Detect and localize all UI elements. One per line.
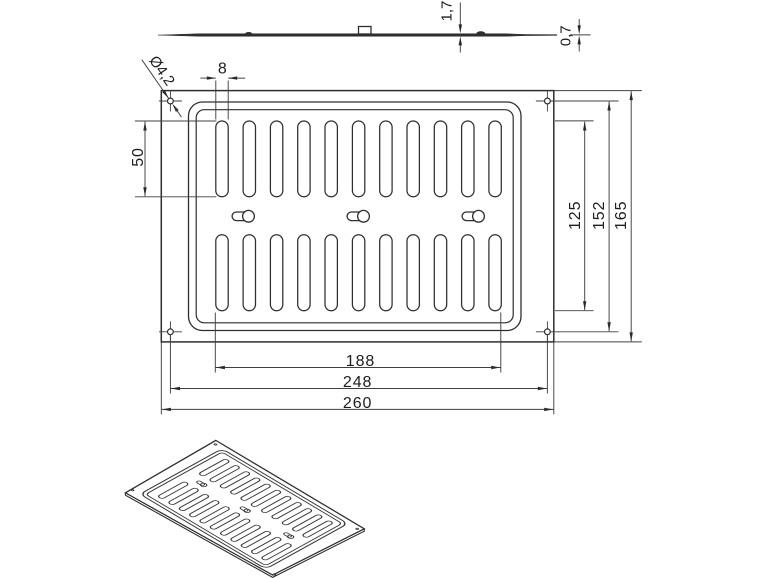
svg-text:1,7: 1,7 (439, 1, 456, 22)
svg-text:0,7: 0,7 (558, 25, 575, 46)
svg-text:8: 8 (218, 61, 228, 78)
svg-text:260: 260 (343, 395, 372, 412)
svg-text:152: 152 (591, 201, 608, 230)
svg-text:125: 125 (567, 201, 584, 230)
svg-text:50: 50 (130, 147, 147, 167)
svg-text:165: 165 (613, 201, 630, 230)
svg-text:248: 248 (343, 374, 372, 391)
svg-text:188: 188 (346, 353, 375, 370)
